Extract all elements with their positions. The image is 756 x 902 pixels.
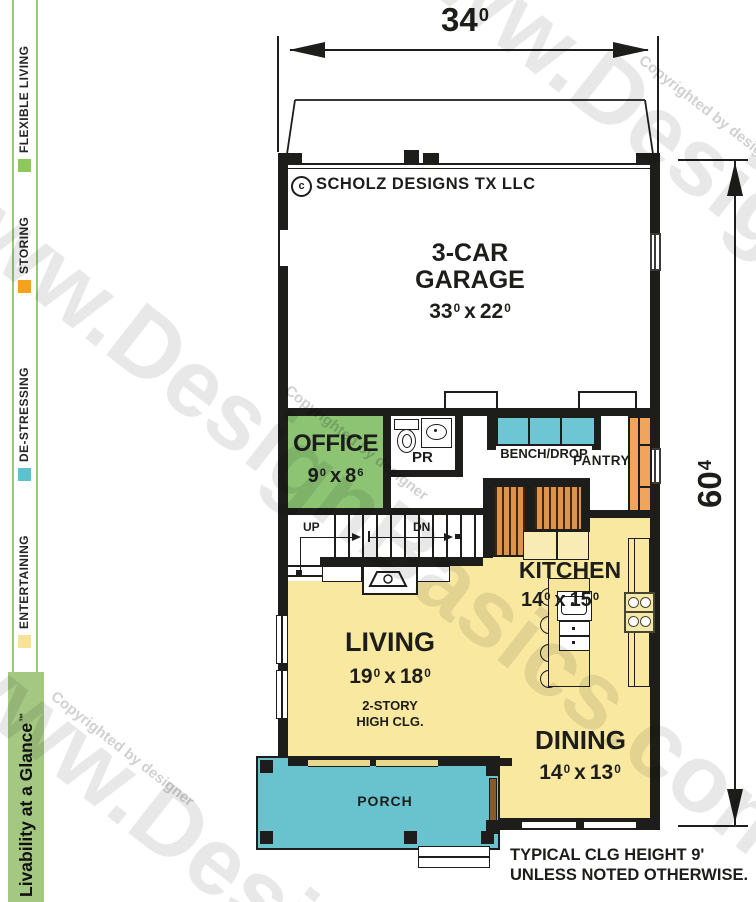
cabinet-divider [528, 418, 530, 444]
wall-segment [486, 758, 500, 776]
sidebar-item-entertaining: ENTERTAINING [15, 535, 33, 648]
ceiling-note-line2: UNLESS NOTED OTHERWISE. [510, 865, 748, 885]
window [522, 821, 576, 829]
stair-winder-line [288, 575, 322, 577]
step-line [419, 856, 489, 858]
window-mullion [654, 235, 656, 269]
flexible-living-swatch-icon [18, 159, 31, 172]
wall-segment [525, 485, 533, 531]
porch-post [260, 760, 273, 773]
wall-segment [487, 412, 496, 450]
sidebar-item-de-stressing: DE-STRESSING [15, 367, 33, 481]
window [376, 759, 438, 767]
wall-segment [582, 478, 590, 532]
burner-icon [628, 597, 639, 608]
shelf-divider [638, 418, 640, 510]
wall-segment [483, 478, 590, 485]
door-leaf [489, 778, 497, 822]
room-dims-living: 190x180 [315, 666, 465, 689]
burner-icon [640, 616, 651, 627]
copyright-icon: c [291, 176, 312, 197]
toilet-bowl-icon [402, 434, 412, 448]
wall-segment [455, 416, 463, 472]
living-note-1: 2-STORY [315, 699, 465, 713]
range-divider [626, 611, 653, 613]
garage-step [578, 391, 637, 410]
window-mullion [281, 616, 283, 663]
kitchen-cabinet [523, 531, 589, 560]
sidebar-item-label: DE-STRESSING [17, 367, 31, 462]
stair-guide-line [300, 537, 301, 573]
stair-winder-line [288, 565, 322, 567]
burner-icon [628, 616, 639, 627]
room-dims-garage: 330x220 [390, 301, 550, 324]
window-mullion [654, 450, 656, 482]
sink-icon [426, 424, 447, 440]
wall-opening [278, 230, 290, 266]
sidebar-item-label: FLEXIBLE LIVING [17, 46, 31, 153]
shelf-divider [640, 444, 650, 446]
room-label-porch: PORCH [330, 794, 440, 809]
cabinet-divider [556, 532, 558, 559]
garage-step [444, 391, 498, 410]
closet-shelving [493, 485, 527, 557]
window [276, 615, 288, 664]
shelf-divider [640, 486, 650, 488]
floor-plan-page: 340 604 c SCHOLZ DESIGNS TX LLC 3-CAR GA… [0, 0, 756, 902]
cabinet-divider [560, 418, 562, 444]
porch-post [404, 831, 417, 844]
room-label-garage: 3-CAR GARAGE [390, 240, 550, 294]
pantry-shelves [628, 416, 652, 512]
wall-segment [423, 153, 439, 163]
window [650, 233, 661, 271]
window-mullion [281, 671, 283, 718]
de-stressing-swatch-icon [18, 468, 31, 481]
window [308, 759, 370, 767]
sidebar-item-flexible-living: FLEXIBLE LIVING [15, 46, 33, 172]
sidebar-item-label: ENTERTAINING [17, 535, 31, 629]
garage-door-header [288, 163, 650, 165]
range-icon [624, 592, 655, 633]
bench-drop-cabinet [496, 416, 596, 446]
burner-icon [640, 597, 651, 608]
copyright-text: SCHOLZ DESIGNS TX LLC [316, 176, 536, 194]
window [276, 670, 288, 719]
sink-drain-icon [434, 429, 437, 432]
porch-steps [418, 846, 490, 868]
room-label-pr: PR [412, 450, 433, 466]
room-label-pantry: PANTRY [573, 454, 630, 469]
living-note-2: HIGH CLG. [315, 715, 465, 729]
wall-segment [278, 153, 288, 233]
closet-shelving [533, 485, 583, 531]
wall-segment [582, 510, 650, 518]
wall-segment [404, 150, 419, 163]
window [584, 821, 636, 829]
garage-door-header [288, 168, 650, 170]
brand-word-1: Livability [16, 821, 36, 897]
